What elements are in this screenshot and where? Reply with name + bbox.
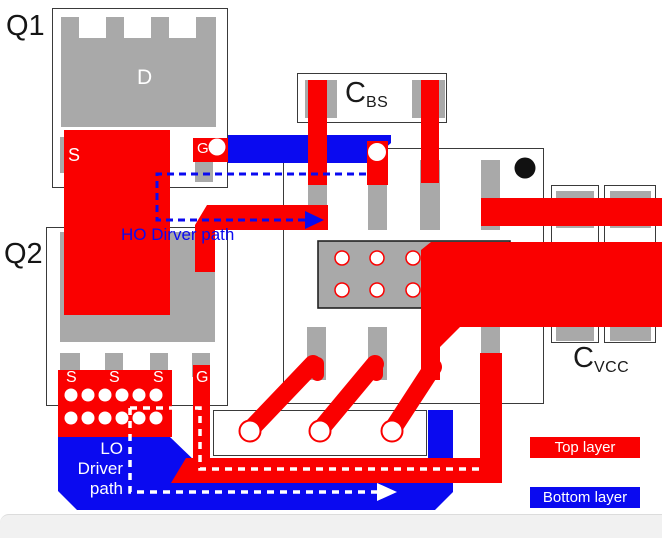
cbs-left-trace — [308, 80, 327, 185]
q1-gate-pad-sliver — [195, 162, 213, 182]
cbs-label-sub: BS — [366, 94, 388, 111]
legend-top-layer: Top layer — [530, 437, 640, 458]
cbs-right-trace — [421, 80, 439, 183]
power-plane-block — [421, 242, 662, 327]
cvcc-label-sub: VCC — [594, 359, 629, 376]
q1-label: Q1 — [6, 10, 45, 43]
lo-driver-path-label: LO Driver path — [43, 439, 123, 499]
legend-bottom-layer: Bottom layer — [530, 487, 640, 508]
q1-gate-via — [209, 139, 226, 156]
q1-drain-tab — [61, 17, 79, 39]
lo-label-line3: path — [43, 479, 123, 499]
legend-top-layer-label: Top layer — [555, 439, 616, 456]
fanout-trace — [250, 364, 313, 430]
cvcc-label: CVCC — [573, 342, 629, 375]
q1-drain-label: D — [137, 66, 152, 90]
q2-gate-label: G — [196, 369, 208, 387]
via-fanout-traces — [250, 364, 433, 430]
q2-label: Q2 — [4, 238, 43, 271]
q2-source-label: S — [66, 369, 77, 387]
q1-drain-tab — [196, 17, 216, 39]
legend-bottom-layer-label: Bottom layer — [543, 489, 627, 506]
q1-source-label: S — [68, 145, 80, 166]
lo-label-line2: Driver — [43, 459, 123, 479]
q2-source-label: S — [153, 369, 164, 387]
lo-label-line1: LO — [43, 439, 123, 459]
cbs-label-main: C — [345, 77, 366, 109]
q1-gate-label: G — [197, 140, 209, 157]
vcc-trace — [481, 198, 662, 226]
pcb-layout-figure: Q1 Q2 D S G CBS CVCC HO Dirver path LO D… — [0, 0, 662, 538]
cbs-label: CBS — [345, 77, 388, 110]
q1-drain-tab — [106, 17, 124, 39]
cvcc-label-main: C — [573, 342, 594, 374]
q1-drain-tab — [151, 17, 169, 39]
fanout-trace — [320, 364, 375, 430]
fanout-trace — [392, 367, 433, 430]
ic-pin1-marker-dot — [515, 158, 536, 179]
hb-via — [368, 143, 386, 161]
q2-source-label: S — [109, 369, 120, 387]
ho-driver-path-label: HO Dirver path — [121, 225, 234, 245]
